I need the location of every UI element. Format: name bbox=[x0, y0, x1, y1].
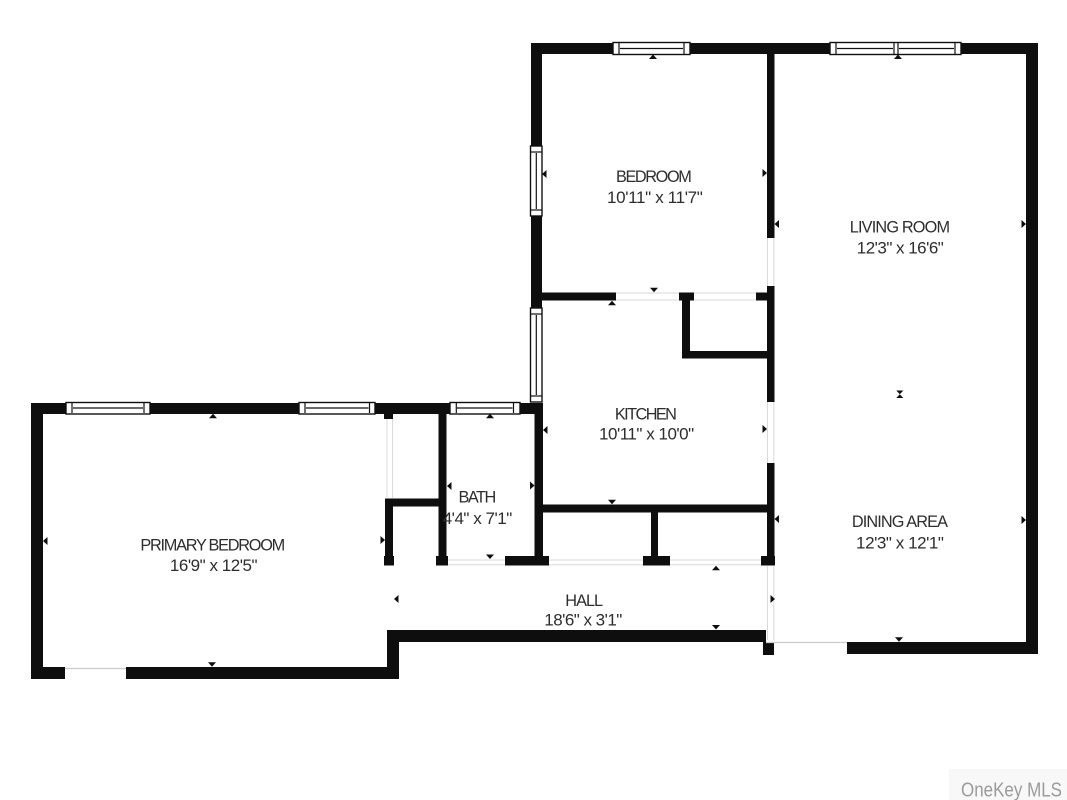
svg-text:DINING AREA: DINING AREA bbox=[852, 513, 948, 531]
svg-text:16'9" x 12'5": 16'9" x 12'5" bbox=[170, 556, 258, 575]
svg-text:PRIMARY BEDROOM: PRIMARY BEDROOM bbox=[140, 537, 285, 555]
svg-text:LIVING ROOM: LIVING ROOM bbox=[850, 219, 951, 237]
svg-text:10'11" x 10'0": 10'11" x 10'0" bbox=[599, 425, 694, 444]
svg-text:12'3" x 16'6": 12'3" x 16'6" bbox=[857, 239, 944, 258]
svg-text:12'3" x 12'1": 12'3" x 12'1" bbox=[856, 534, 944, 553]
svg-text:BEDROOM: BEDROOM bbox=[616, 168, 692, 186]
svg-text:BATH: BATH bbox=[459, 489, 497, 507]
svg-text:OneKey MLS: OneKey MLS bbox=[961, 779, 1062, 800]
svg-text:HALL: HALL bbox=[565, 592, 603, 610]
svg-text:10'11" x 11'7": 10'11" x 11'7" bbox=[607, 188, 703, 207]
svg-text:4'4" x 7'1": 4'4" x 7'1" bbox=[443, 509, 513, 528]
svg-text:KITCHEN: KITCHEN bbox=[615, 405, 677, 423]
svg-text:18'6" x 3'1": 18'6" x 3'1" bbox=[544, 611, 622, 630]
